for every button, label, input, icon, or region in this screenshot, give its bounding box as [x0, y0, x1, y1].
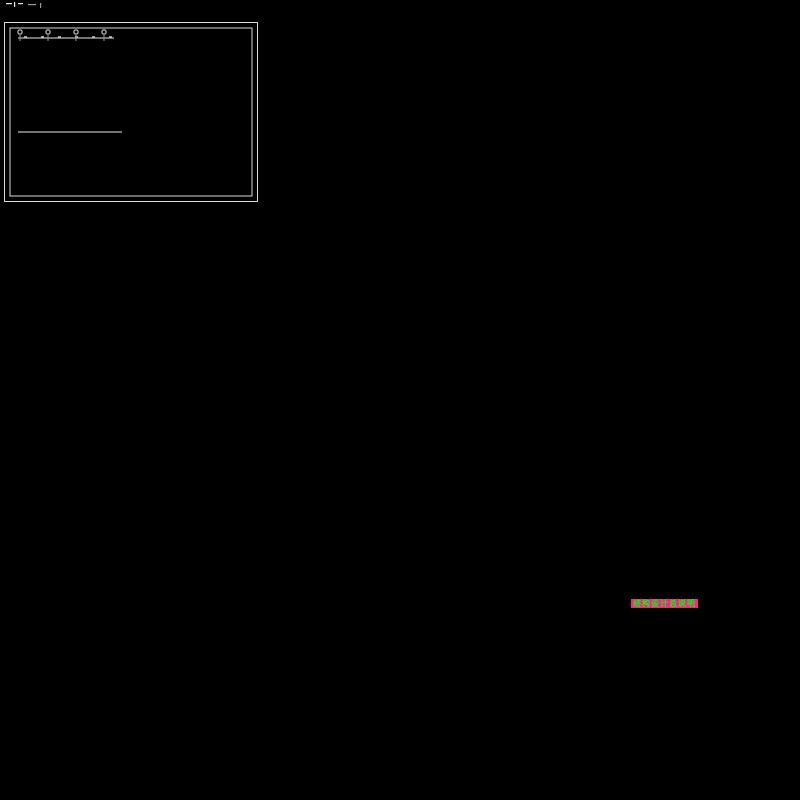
sheet-column-elevations-and-joint-details	[537, 403, 796, 585]
sheet-roof-beam-layout-plan	[277, 403, 531, 585]
sheet-slab-reinforcement-plan-a	[4, 212, 258, 395]
sheet-beam-elevations-and-notes	[277, 598, 531, 775]
stray-plot-marks	[4, 1, 50, 10]
sheet-stair-and-wall-section-details	[537, 22, 796, 202]
sheet-slab-reinforcement-plan-b	[277, 212, 531, 395]
sheet-paired-framing-plans-with-column-detail	[4, 598, 258, 775]
sheet-foundation-plan-and-footing-details	[4, 22, 258, 202]
sheet-structural-general-notes	[537, 598, 796, 775]
cad-drawing-montage: 结构设计总说明	[0, 0, 800, 800]
axis-grid	[18, 30, 122, 132]
notes-sheet-title: 结构设计总说明	[631, 599, 698, 608]
sheet-beam-layout-plan	[537, 212, 796, 395]
sheet-floor-plan-and-joint-details	[277, 22, 531, 202]
sheet-paired-floor-framing-plans	[4, 403, 258, 585]
